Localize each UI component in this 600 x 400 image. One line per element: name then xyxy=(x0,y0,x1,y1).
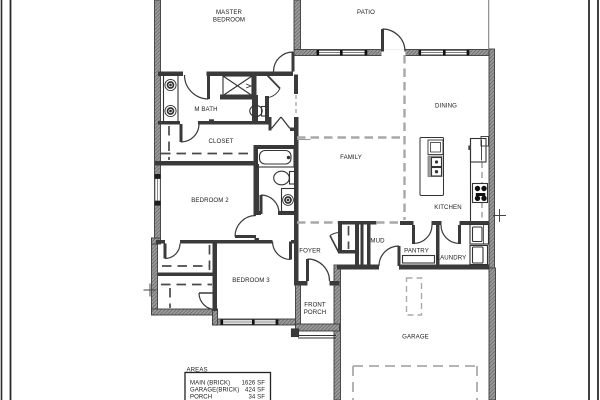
svg-text:BEDROOM 2: BEDROOM 2 xyxy=(191,197,229,204)
svg-text:PANTRY: PANTRY xyxy=(404,248,429,255)
svg-text:424 SF: 424 SF xyxy=(245,388,265,394)
svg-text:CLOSET: CLOSET xyxy=(209,138,234,145)
svg-text:KITCHEN: KITCHEN xyxy=(434,204,461,211)
svg-text:MASTER: MASTER xyxy=(216,9,242,16)
svg-text:BEDROOM: BEDROOM xyxy=(213,17,245,24)
svg-text:DINING: DINING xyxy=(435,103,457,110)
svg-text:34 SF: 34 SF xyxy=(248,395,265,400)
svg-text:MAIN (BRICK): MAIN (BRICK) xyxy=(190,381,230,387)
svg-text:1626 SF: 1626 SF xyxy=(242,381,266,387)
svg-text:MUD: MUD xyxy=(370,238,385,245)
svg-text:BEDROOM 3: BEDROOM 3 xyxy=(232,277,270,284)
svg-text:GARAGE(BRICK): GARAGE(BRICK) xyxy=(190,388,239,394)
svg-text:FAMILY: FAMILY xyxy=(340,154,362,161)
svg-text:PORCH: PORCH xyxy=(304,309,327,316)
svg-text:PORCH: PORCH xyxy=(190,395,212,400)
svg-text:GARAGE: GARAGE xyxy=(402,334,429,341)
svg-text:LAUNDRY: LAUNDRY xyxy=(437,255,467,262)
svg-text:FOYER: FOYER xyxy=(299,248,321,255)
svg-text:FRONT: FRONT xyxy=(304,302,326,309)
svg-text:PATIO: PATIO xyxy=(357,9,375,16)
svg-text:M BATH: M BATH xyxy=(194,106,217,113)
